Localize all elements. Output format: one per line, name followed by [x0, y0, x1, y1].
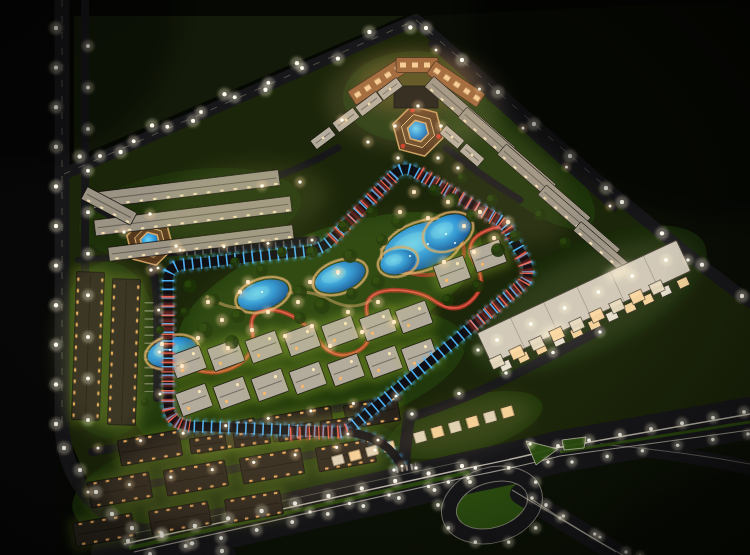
vignette-overlay [0, 0, 750, 555]
masterplan-aerial-render [0, 0, 750, 555]
masterplan-render-stage [0, 0, 750, 555]
